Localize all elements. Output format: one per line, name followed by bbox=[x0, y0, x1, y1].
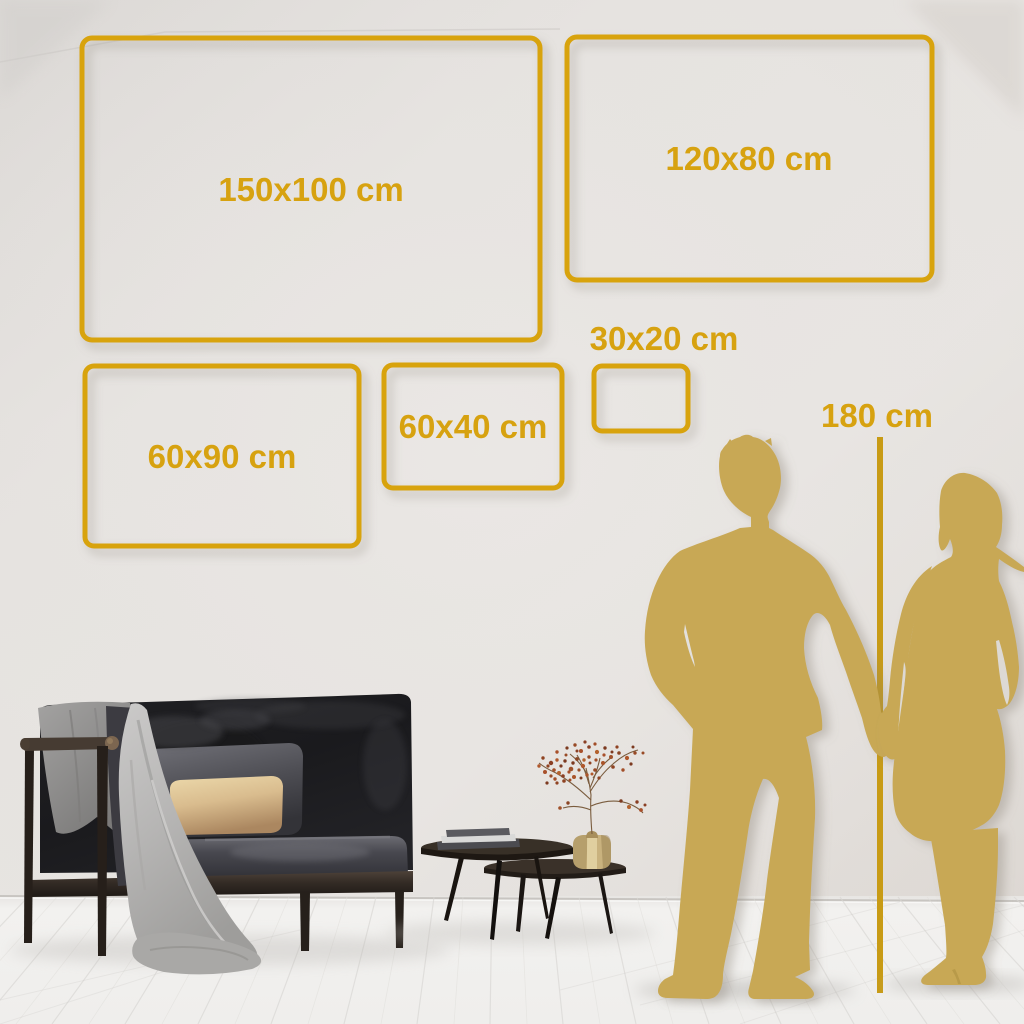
svg-text:120x80 cm: 120x80 cm bbox=[666, 140, 833, 177]
svg-text:60x90 cm: 60x90 cm bbox=[148, 438, 297, 475]
svg-text:60x40 cm: 60x40 cm bbox=[399, 408, 548, 445]
svg-text:150x100 cm: 150x100 cm bbox=[218, 171, 403, 208]
svg-text:180 cm: 180 cm bbox=[821, 397, 933, 434]
svg-text:30x20 cm: 30x20 cm bbox=[590, 320, 739, 357]
